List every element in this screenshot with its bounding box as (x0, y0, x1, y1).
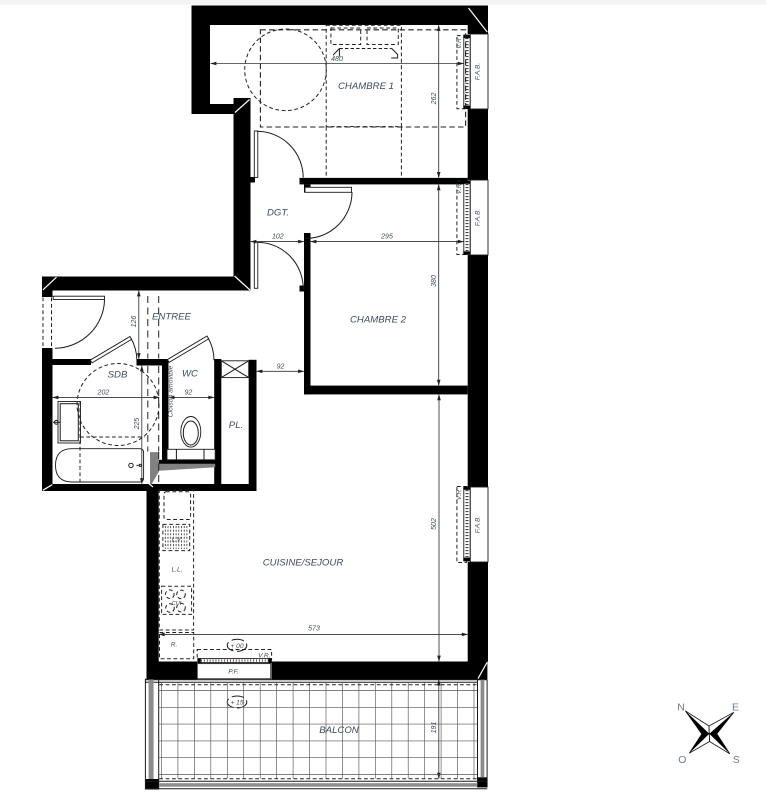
svg-text:E: E (732, 702, 739, 714)
svg-text:S: S (733, 754, 740, 766)
svg-text:+ 00: + 00 (230, 643, 243, 650)
svg-text:PL.: PL. (229, 420, 243, 431)
svg-text:L.L.: L.L. (172, 567, 183, 574)
svg-text:V.R: V.R (456, 490, 463, 501)
svg-text:573: 573 (308, 626, 320, 633)
svg-text:N: N (677, 702, 685, 714)
svg-text:CHAMBRE 1: CHAMBRE 1 (338, 81, 394, 92)
svg-text:F.A.B.: F.A.B. (474, 516, 481, 534)
svg-text:V.R: V.R (456, 184, 463, 195)
svg-text:R.: R. (171, 642, 178, 649)
svg-text:202: 202 (97, 389, 110, 396)
svg-text:F.A.B.: F.A.B. (474, 63, 481, 81)
svg-text:ENTREE: ENTREE (152, 312, 192, 323)
svg-text:P.F.: P.F. (228, 669, 239, 676)
svg-text:92: 92 (185, 389, 193, 396)
svg-text:WC: WC (182, 369, 198, 380)
svg-text:SDB: SDB (108, 370, 128, 381)
svg-text:CUISINE/SEJOUR: CUISINE/SEJOUR (263, 558, 344, 569)
svg-text:102: 102 (272, 234, 284, 241)
svg-text:502: 502 (431, 518, 438, 530)
svg-text:BALCON: BALCON (319, 725, 359, 736)
svg-text:O: O (678, 754, 686, 766)
svg-text:V.R: V.R (456, 38, 463, 49)
svg-text:380: 380 (431, 275, 438, 287)
svg-text:Cloison amovible: Cloison amovible (167, 365, 174, 417)
svg-text:+ 15: + 15 (230, 700, 243, 707)
svg-text:F.A.B.: F.A.B. (474, 209, 481, 227)
svg-text:225: 225 (134, 418, 141, 431)
svg-text:CHAMBRE 2: CHAMBRE 2 (350, 315, 407, 326)
svg-text:126: 126 (131, 316, 138, 328)
svg-text:480: 480 (331, 56, 343, 63)
svg-text:191: 191 (431, 722, 438, 734)
svg-text:295: 295 (380, 234, 393, 241)
svg-text:262: 262 (431, 93, 438, 106)
svg-text:L.V: L.V (172, 538, 182, 544)
svg-text:CUI: CUI (172, 601, 182, 607)
svg-text:DGT.: DGT. (267, 207, 289, 218)
svg-text:92: 92 (277, 363, 285, 370)
